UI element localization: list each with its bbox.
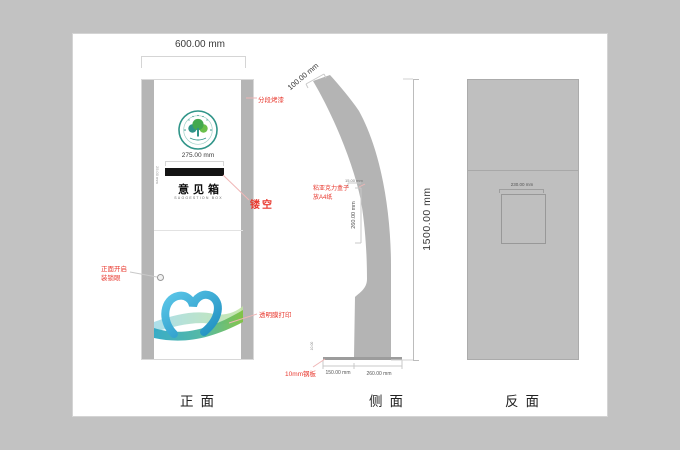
heart-ribbon-graphic <box>154 286 243 360</box>
acrylic-top-dimension: 15.00 mm <box>345 178 363 183</box>
door-dim-bracket <box>499 189 544 193</box>
box-title: 意见箱 <box>142 181 255 197</box>
front-width-dim-bracket <box>141 56 246 68</box>
back-panel-seam <box>468 170 578 171</box>
front-panel-divider <box>154 230 243 231</box>
slot-dim-bracket <box>165 161 224 166</box>
slot-width-dimension: 275.00 mm <box>168 152 228 159</box>
hospital-logo-icon <box>177 109 219 151</box>
back-caption: 反面 <box>482 390 562 410</box>
lock-hole <box>157 274 164 281</box>
note-front-open: 正面开启 装锁眼 <box>101 265 127 283</box>
front-caption: 正面 <box>157 390 237 410</box>
height-dim-tick-top <box>413 79 419 80</box>
note-acrylic-line2: 放A4纸 <box>313 194 349 203</box>
drawing-page: 600.00 mm 275.00 mm 25.00 m <box>72 33 608 417</box>
door-width-dimension: 230.00 mm <box>492 182 552 187</box>
note-cutout: 镂空 <box>250 196 274 211</box>
design-proof-canvas: 600.00 mm 275.00 mm 25.00 m <box>0 0 680 450</box>
box-subtitle: SUGGESTION BOX <box>142 196 255 200</box>
front-width-dimension: 600.00 mm <box>160 39 240 50</box>
back-panel: 230.00 mm <box>467 79 579 360</box>
base-depth-dimension: 260.00 mm <box>359 371 399 377</box>
base-front-dimension: 150.00 mm <box>319 370 357 376</box>
front-panel: 275.00 mm 25.00 mm 意见箱 SUGGESTION BOX <box>141 79 254 360</box>
note-acrylic-line1: 粘亚克力盒子 <box>313 185 349 194</box>
acrylic-height-dimension: 260.00 mm <box>351 195 357 235</box>
note-acrylic: 粘亚克力盒子 放A4纸 <box>313 185 349 203</box>
side-height-dimension: 1500.00 mm <box>421 179 433 259</box>
front-left-post <box>142 80 154 359</box>
plate-thickness-dimension: 10.00 <box>310 337 314 355</box>
height-dim-tick-bottom <box>413 360 419 361</box>
suggestion-slot <box>165 168 224 176</box>
access-door-outline <box>501 194 546 244</box>
note-open-line2: 装锁眼 <box>101 274 127 283</box>
height-dim-line <box>413 79 414 361</box>
note-film: 透明膜打印 <box>259 309 292 319</box>
note-plate: 10mm钢板 <box>285 368 316 378</box>
side-caption: 侧面 <box>346 390 426 410</box>
note-open-line1: 正面开启 <box>101 265 127 274</box>
